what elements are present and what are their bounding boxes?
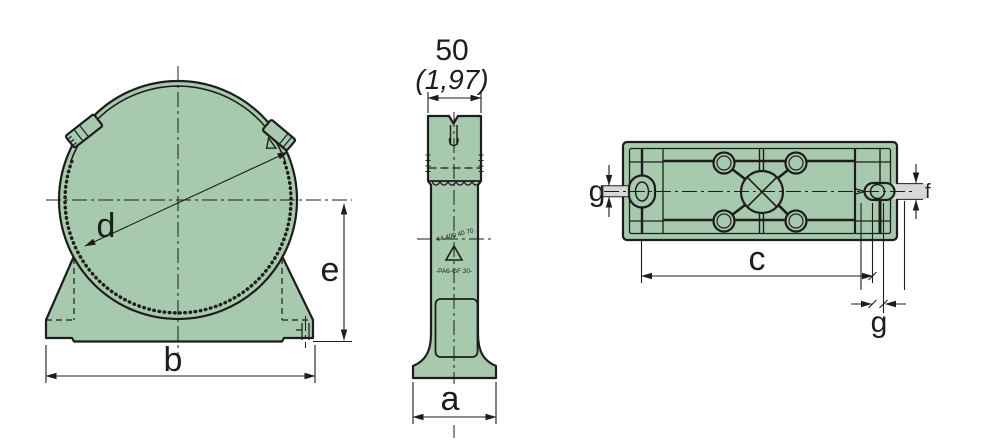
drawing-canvas: d b e 44 400 40 70 -PA6-G <box>0 0 983 441</box>
dimension-e: e <box>313 204 352 342</box>
dimension-label-b: b <box>164 341 183 379</box>
dimension-g-bottom: g <box>851 300 906 339</box>
dimension-label-50mm: 50 <box>435 34 468 67</box>
dimension-label-g-bottom: g <box>871 306 888 339</box>
dimension-a: a <box>413 380 496 424</box>
bottom-view: g f c g <box>589 142 931 339</box>
dimension-label-c: c <box>749 240 766 278</box>
dimension-c: c <box>642 240 877 280</box>
dimension-label-inch: (1,97) <box>415 64 488 95</box>
dimension-label-e: e <box>321 251 340 289</box>
dimension-50: 50 (1,97) <box>415 34 488 113</box>
dimension-label-f: f <box>925 181 931 203</box>
dimension-label-a: a <box>441 380 460 418</box>
dimension-label-d: d <box>97 207 116 245</box>
side-view: 44 400 40 70 -PA6-GF 30- 50 (1,97) a <box>413 34 496 438</box>
technical-drawing: d b e 44 400 40 70 -PA6-G <box>0 0 983 441</box>
dimension-label-g-left: g <box>589 175 606 208</box>
dimension-b: b <box>46 341 315 383</box>
front-view: d b e <box>46 66 352 383</box>
